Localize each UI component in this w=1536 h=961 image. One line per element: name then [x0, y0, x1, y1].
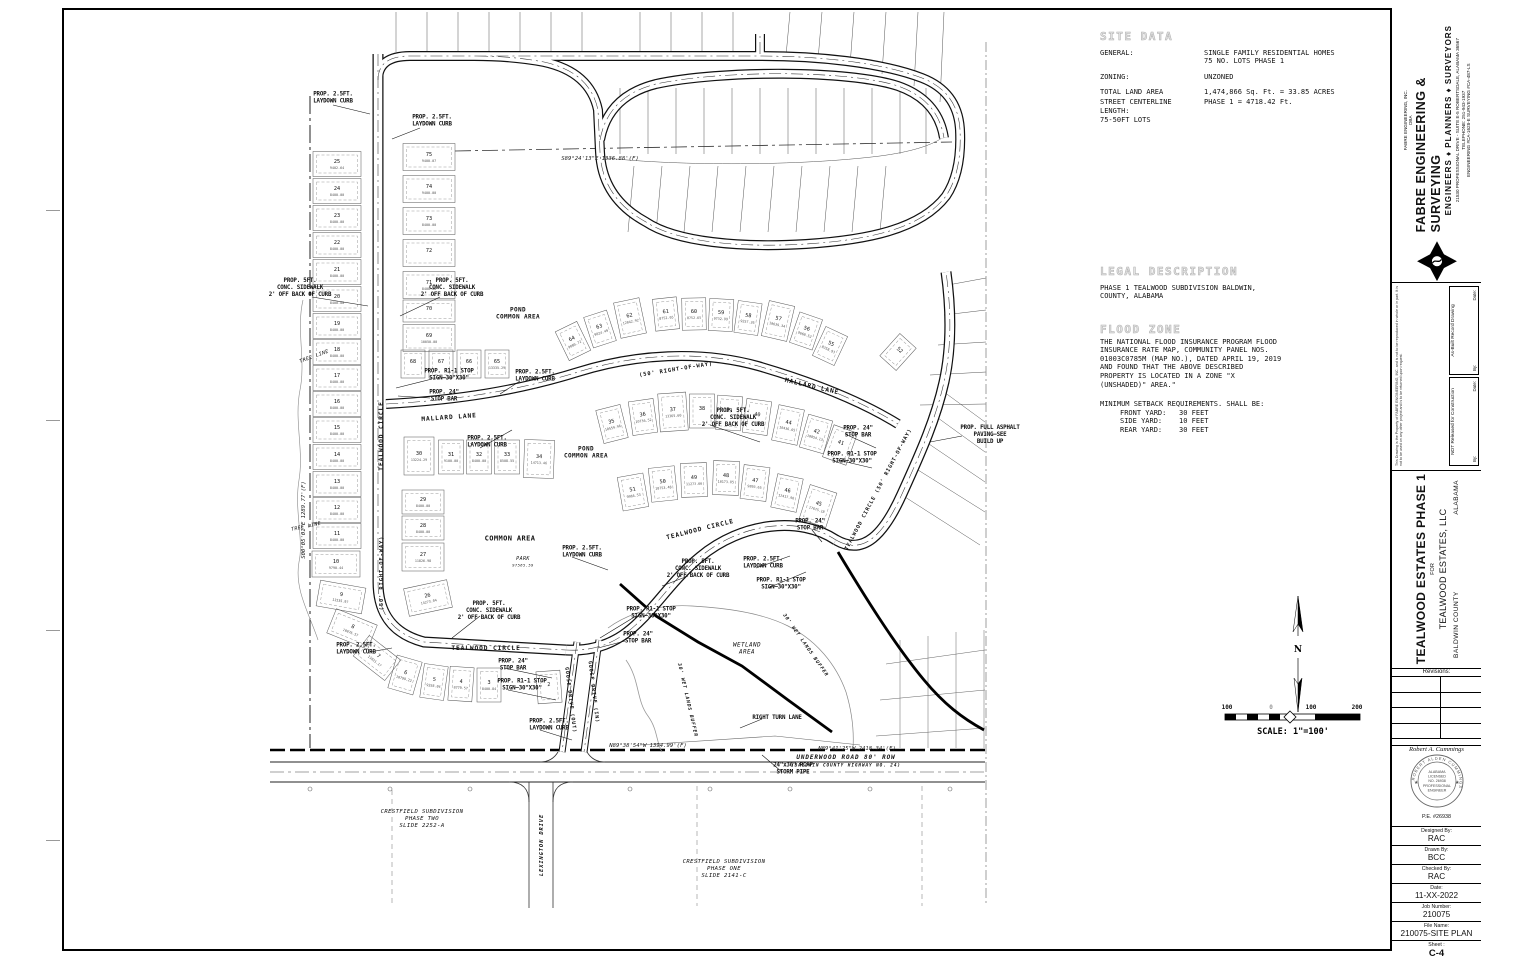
- svg-text:POND: POND: [578, 446, 594, 453]
- not-released-box: NOT Released for Construction By:Date:: [1449, 377, 1479, 466]
- svg-text:PROP. 2.5FT.: PROP. 2.5FT.: [515, 370, 554, 376]
- plan-callout: PROP. 2.5FT.LAYDOWN CURB: [336, 643, 376, 656]
- street-label: TEALWOOD CIRCLE: [451, 645, 520, 652]
- lot-number: 47: [752, 478, 759, 485]
- lot-number: 16: [334, 399, 340, 405]
- lot-number: 58: [745, 313, 752, 320]
- svg-text:RIGHT TURN LANE: RIGHT TURN LANE: [752, 715, 802, 721]
- lot: 128400.00: [313, 498, 361, 523]
- lot-area: 14713.46: [531, 461, 547, 466]
- lot: 911535.97: [316, 580, 366, 614]
- lot-area: 10050.00: [421, 340, 437, 344]
- svg-text:LAYDOWN CURB: LAYDOWN CURB: [336, 650, 376, 656]
- svg-text:POND: POND: [510, 307, 526, 314]
- plan-callout: RIGHT TURN LANE: [752, 715, 802, 721]
- lot-area: 9358.84: [426, 683, 441, 689]
- lot-area: 8400.00: [330, 512, 344, 516]
- lot-number: 32: [476, 452, 482, 458]
- lot: 738400.00: [403, 208, 455, 235]
- lot-number: 15: [334, 425, 340, 431]
- lot: 519966.53: [617, 473, 649, 511]
- lot-number: 26: [424, 592, 431, 599]
- north-label: N: [1294, 645, 1302, 655]
- revisions-cell: [1392, 708, 1441, 724]
- lot: 5710639.34: [761, 301, 794, 342]
- lot-number: 11: [334, 531, 340, 537]
- plan-callout: PROP. R1-1 STOPSIGN—30"X30": [497, 679, 547, 692]
- plan-callout: PROP. 24"STOP BAR: [843, 426, 873, 439]
- lot: 639024.49: [584, 310, 617, 348]
- fabre-logo-icon: [1415, 240, 1459, 282]
- lot-area: 8400.00: [330, 247, 344, 251]
- plan-callout: PROP. 24"STOP BAR: [429, 390, 459, 403]
- lot-number: 59: [718, 310, 725, 316]
- lot-area: 9100.00: [444, 459, 458, 463]
- lot: 238400.00: [313, 206, 361, 231]
- drawing-disclaimer: This Drawing is the Property of FABRE EN…: [1395, 286, 1404, 466]
- engineer-name: Robert A. Cummings: [1392, 745, 1481, 753]
- lot: 4911273.66: [680, 463, 707, 498]
- lot-area: 13224.29: [411, 458, 427, 462]
- site-data-row: ZONING:UNZONED: [1100, 73, 1400, 82]
- svg-text:2' OFF BACK OF CURB: 2' OFF BACK OF CURB: [421, 292, 484, 298]
- lot-number: 65: [494, 359, 500, 365]
- svg-text:CONC. SIDEWALK: CONC. SIDEWALK: [675, 566, 722, 572]
- svg-text:PAVING—SEE: PAVING—SEE: [974, 432, 1008, 438]
- lot-area: 8400.00: [330, 193, 344, 197]
- project-title: TEALWOOD ESTATES PHASE 1: [1414, 474, 1428, 665]
- lot-number: 19: [334, 321, 340, 327]
- bearing-label: S89°24'13"E 1336.88'(F): [561, 156, 638, 162]
- lot-area: 9790.44: [329, 566, 343, 570]
- plan-area-label: TREE LINE: [299, 349, 330, 365]
- lot-number: 48: [723, 473, 729, 479]
- svg-text:LAYDOWN CURB: LAYDOWN CURB: [313, 99, 353, 105]
- svg-text:STOP BAR: STOP BAR: [845, 433, 872, 439]
- svg-text:N89°38'54"W 1394.99'(F): N89°38'54"W 1394.99'(F): [608, 743, 686, 749]
- lot: 3510559.96: [596, 404, 628, 443]
- firm-name: FABRE ENGINEERING & SURVEYING: [1414, 8, 1443, 232]
- site-data-block: SITE DATA GENERAL:SINGLE FAMILY RESIDENT…: [1100, 33, 1400, 126]
- lot-number: 72: [426, 248, 432, 254]
- svg-text:PROP. 2.5FT.: PROP. 2.5FT.: [467, 436, 506, 442]
- svg-text:97565.59: 97565.59: [512, 562, 534, 567]
- plan-area-label: PONDCOMMON AREA: [564, 446, 608, 460]
- lot: 168400.00: [313, 392, 361, 417]
- lot-area: 17675.18: [808, 505, 825, 514]
- svg-text:CONC. SIDEWALK: CONC. SIDEWALK: [466, 608, 513, 614]
- lot: 608752.65: [682, 298, 707, 330]
- svg-text:CONC. SIDEWALK: CONC. SIDEWALK: [277, 285, 324, 291]
- date-field: Date:11-XX-2022: [1392, 883, 1481, 902]
- site-data-row: 75-50FT LOTS: [1100, 116, 1400, 125]
- lot-number: 8: [350, 624, 355, 631]
- lot: 228400.00: [313, 233, 361, 258]
- lot-area: 8400.00: [330, 274, 344, 278]
- lot: 4210854.13: [799, 414, 832, 454]
- lot: 6212042.92: [614, 298, 647, 339]
- project-state: ALABAMA: [1453, 480, 1460, 515]
- svg-text:30' WET LANDS BUFFER: 30' WET LANDS BUFFER: [676, 662, 699, 738]
- lot-number: 52: [895, 346, 904, 355]
- lot-area: 9668.52: [797, 331, 812, 339]
- svg-text:(BALDWIN COUNTY HIGHWAY NO. 24: (BALDWIN COUNTY HIGHWAY NO. 24): [791, 763, 901, 769]
- svg-text:(50' RIGHT-OF-WAY): (50' RIGHT-OF-WAY): [379, 536, 385, 611]
- lot: 118400.00: [313, 524, 361, 549]
- svg-text:ENGINEER: ENGINEER: [1427, 788, 1446, 792]
- revisions-cell: [1392, 724, 1441, 740]
- svg-text:PROP. R1-1 STOP: PROP. R1-1 STOP: [756, 578, 806, 584]
- lot-number: 24: [334, 186, 340, 192]
- plan-area-label: CRESTFIELD SUBDIVISIONPHASE TWOSLIDE 225…: [381, 809, 464, 829]
- lot-number: 69: [426, 333, 432, 339]
- svg-text:2' OFF BACK OF CURB: 2' OFF BACK OF CURB: [458, 615, 521, 621]
- svg-text:PARK: PARK: [516, 556, 530, 562]
- svg-text:STOP BAR: STOP BAR: [797, 526, 824, 532]
- lot-number: 49: [691, 475, 697, 481]
- file-name-field: File Name:210075-SITE PLAN: [1392, 921, 1481, 940]
- lot: 148400.00: [313, 445, 361, 470]
- plan-callout: PROP. 24"STOP BAR: [498, 659, 528, 672]
- lot: 479893.65: [740, 465, 770, 502]
- lot: 649080.72: [555, 321, 591, 360]
- svg-text:LAYDOWN CURB: LAYDOWN CURB: [412, 122, 452, 128]
- lot: 3013224.29: [404, 437, 434, 475]
- lot-number: 50: [659, 479, 666, 486]
- svg-text:PROP. 2.5FT.: PROP. 2.5FT.: [743, 557, 782, 563]
- lot-number: 44: [785, 419, 792, 426]
- release-block: This Drawing is the Property of FABRE EN…: [1393, 282, 1481, 470]
- svg-text:SIGN—30"X30": SIGN—30"X30": [832, 459, 871, 465]
- street-label: LEXINGTON DRIVE: [539, 814, 545, 876]
- lot-number: 27: [420, 552, 426, 558]
- firm-block: FABRE ENGINEERING, INC. DBA FABRE ENGINE…: [1393, 8, 1481, 282]
- svg-text:PROP. 2.5FT.: PROP. 2.5FT.: [529, 719, 568, 725]
- lot-number: 68: [410, 359, 416, 365]
- firm-tagline: ENGINEERS ♦ PLANNERS ♦ SURVEYORS: [1444, 25, 1453, 215]
- plan-area-label: COMMON AREA: [485, 534, 536, 542]
- scale-tick-label: 0: [1269, 704, 1273, 711]
- pe-seal-icon: ROBERT ALDEN CUMMINGS ★ ★ ALABAMALICENSE…: [1408, 753, 1466, 809]
- svg-text:STOP BAR: STOP BAR: [625, 639, 652, 645]
- lot-number: 31: [448, 452, 454, 458]
- lot: 38400.84: [477, 668, 501, 702]
- svg-text:UNDERWOOD ROAD 80' ROW: UNDERWOOD ROAD 80' ROW: [796, 754, 896, 761]
- lot-area: 8400.00: [330, 432, 344, 436]
- lot-area: 9893.65: [747, 484, 762, 490]
- legal-description-title: LEGAL DESCRIPTION: [1100, 268, 1400, 277]
- lot-number: 4: [459, 679, 463, 685]
- svg-text:PROP. 2.5FT.: PROP. 2.5FT.: [562, 546, 601, 552]
- svg-text:SLIDE 2252-A: SLIDE 2252-A: [399, 823, 444, 829]
- title-block: FABRE ENGINEERING, INC. DBA FABRE ENGINE…: [1390, 8, 1481, 951]
- revisions-cell: [1441, 693, 1481, 709]
- svg-text:COMMON AREA: COMMON AREA: [496, 314, 540, 321]
- lot: 589257.26: [734, 300, 762, 335]
- checked-by-field: Checked By:RAC: [1392, 864, 1481, 883]
- lot-area: 8400.00: [472, 459, 486, 463]
- scale-text: SCALE: 1"=100': [1257, 727, 1329, 737]
- drawn-by-field: Drawn By:BCC: [1392, 845, 1481, 864]
- lot-number: 13: [334, 479, 340, 485]
- lot-number: 6: [403, 670, 408, 677]
- revisions-cell: [1392, 693, 1441, 709]
- firm-dba: DBA: [1408, 115, 1413, 124]
- lots: 259402.64248400.00238400.00228400.002184…: [312, 144, 916, 704]
- lot-number: 41: [837, 439, 845, 447]
- svg-text:★: ★: [1414, 780, 1419, 786]
- lot: 288400.00: [402, 516, 444, 540]
- lot-number: 10: [333, 559, 339, 565]
- svg-text:CONC. SIDEWALK: CONC. SIDEWALK: [710, 415, 757, 421]
- job-number-field: Job Number:210075: [1392, 902, 1481, 921]
- svg-text:2' OFF BACK OF CURB: 2' OFF BACK OF CURB: [702, 422, 765, 428]
- lot-number: 23: [334, 213, 340, 219]
- svg-text:LAYDOWN CURB: LAYDOWN CURB: [529, 726, 569, 732]
- lot: 48779.57: [448, 666, 474, 702]
- revisions-cell: [1441, 708, 1481, 724]
- street-label: MALLARD LANE: [421, 412, 477, 423]
- street-label: TEALWOOD CIRCLE: [378, 401, 385, 470]
- lot: 59358.84: [420, 663, 448, 700]
- svg-text:WETLAND: WETLAND: [733, 642, 761, 649]
- lot-area: 8400.00: [330, 538, 344, 542]
- lot-number: 73: [426, 216, 432, 222]
- street-label: (50' RIGHT-OF-WAY): [639, 361, 714, 379]
- plan-callout: PROP. 24"STOP BAR: [795, 519, 825, 532]
- lot-area: 12042.92: [622, 318, 639, 325]
- revisions-label: Revisions:: [1392, 668, 1481, 676]
- plan-callout: PROP. R1-1 STOPSIGN—30"X30": [756, 578, 806, 591]
- lot-number: 70: [426, 306, 432, 312]
- lot-area: 8400.84: [482, 687, 496, 691]
- lot: 618752.65: [652, 297, 679, 331]
- lot-area: 8779.57: [453, 685, 468, 690]
- lot-area: 9402.64: [330, 166, 344, 170]
- drawing-info-fields: Designed By:RAC Drawn By:BCC Checked By:…: [1392, 826, 1481, 949]
- firm-licenses: ENGINEERING #CA-1628-E SURVEYING #CA-487…: [1466, 63, 1471, 177]
- plan-area-label: PARK: [516, 556, 530, 562]
- plan-callout: PROP. R1-1 STOPSIGN—30"X30": [626, 607, 676, 620]
- plan-callout: PROP. 2.5FT.LAYDOWN CURB: [743, 557, 783, 570]
- lot-area: 8400.00: [330, 220, 344, 224]
- plan-area-label: WETLANDAREA: [733, 642, 761, 656]
- lot-number: 51: [629, 487, 636, 494]
- setbacks-heading: MINIMUM SETBACK REQUIREMENTS. SHALL BE:: [1100, 400, 1400, 409]
- svg-text:AREA: AREA: [738, 649, 755, 656]
- lot-number: 46: [784, 487, 791, 494]
- svg-text:TEALWOOD CIRCLE: TEALWOOD CIRCLE: [378, 401, 385, 470]
- lot-area: 8400.00: [416, 530, 430, 534]
- svg-text:SIGN—30"X30": SIGN—30"X30": [631, 614, 670, 620]
- lot: 3414713.46: [523, 439, 554, 478]
- svg-text:PROP. R1-1 STOP: PROP. R1-1 STOP: [424, 369, 474, 375]
- plan-callout: PROP. 2.5FT.LAYDOWN CURB: [515, 370, 555, 383]
- lot-area: 8400.00: [330, 486, 344, 490]
- lot: 3610736.52: [628, 398, 657, 435]
- lot: 158400.00: [313, 418, 361, 443]
- as-built-box: As-Built Record Drawing By:Date:: [1449, 286, 1479, 375]
- lot-area: 8400.00: [330, 354, 344, 358]
- engineer-seal-block: Robert A. Cummings ROBERT ALDEN CUMMINGS…: [1392, 745, 1481, 820]
- svg-text:PROP. 24": PROP. 24": [843, 426, 873, 432]
- plan-callout: PROP. R1-1 STOPSIGN—30"X30": [827, 452, 877, 465]
- svg-text:CRESTFIELD SUBDIVISION: CRESTFIELD SUBDIVISION: [381, 809, 464, 815]
- street-label: (BALDWIN COUNTY HIGHWAY NO. 24): [791, 763, 901, 769]
- plan-callout: PROP. 2.5FT.LAYDOWN CURB: [529, 719, 569, 732]
- svg-text:SIGN—30"X30": SIGN—30"X30": [429, 376, 468, 382]
- svg-text:PROP. R1-1 STOP: PROP. R1-1 STOP: [497, 679, 547, 685]
- lot: 749400.00: [403, 176, 455, 203]
- sheet-field: Sheet :C-4: [1392, 940, 1481, 961]
- lot-area: 8400.00: [330, 459, 344, 463]
- lot-area: 14273.04: [420, 598, 437, 605]
- lot-number: 3: [487, 680, 490, 686]
- lot: 248400.00: [313, 179, 361, 204]
- project-title-block: TEALWOOD ESTATES PHASE 1 FOR TEALWOOD ES…: [1393, 470, 1481, 668]
- svg-text:PROP. 24": PROP. 24": [498, 659, 528, 665]
- svg-text:NO. 26938: NO. 26938: [1428, 779, 1445, 783]
- svg-text:PROP. R1-1 STOP: PROP. R1-1 STOP: [626, 607, 676, 613]
- lot-area: 10559.96: [605, 424, 622, 432]
- lot-number: 74: [426, 184, 432, 190]
- lot: 2711826.98: [402, 543, 444, 571]
- lot-area: 10736.52: [635, 418, 652, 424]
- lot-area: 8400.00: [416, 504, 430, 508]
- svg-text:2' OFF BACK OF CURB: 2' OFF BACK OF CURB: [667, 573, 730, 579]
- designed-by-field: Designed By:RAC: [1392, 826, 1481, 845]
- lot-number: 2: [547, 682, 551, 688]
- svg-text:SIGN—30"X30": SIGN—30"X30": [502, 686, 541, 692]
- site-data-row: GENERAL:SINGLE FAMILY RESIDENTIAL HOMES …: [1100, 49, 1400, 66]
- svg-text:PROP. 2.5FT.: PROP. 2.5FT.: [336, 643, 375, 649]
- svg-text:PROP. 5FT.: PROP. 5FT.: [473, 601, 506, 607]
- site-plan-sheet: { "titleblock": { "firm": { "company_sma…: [0, 0, 1536, 960]
- lot-number: 75: [426, 152, 432, 158]
- svg-text:LICENSED: LICENSED: [1428, 775, 1446, 779]
- svg-text:MALLARD LANE: MALLARD LANE: [421, 412, 477, 423]
- lot: 6513335.29: [485, 350, 509, 378]
- plan-area-label: CRESTFIELD SUBDIVISIONPHASE ONESLIDE 214…: [683, 859, 766, 879]
- svg-text:30' WET LANDS BUFFER: 30' WET LANDS BUFFER: [781, 612, 830, 678]
- scale-bar: 1000100200SCALE: 1"=100': [1222, 704, 1363, 737]
- svg-text:ALABAMA: ALABAMA: [1428, 770, 1446, 774]
- svg-text:PHASE ONE: PHASE ONE: [707, 866, 741, 872]
- lot-number: 12: [334, 505, 340, 511]
- svg-text:PROP. 24": PROP. 24": [623, 632, 653, 638]
- plan-callout: PROP. 2.5FT.LAYDOWN CURB: [467, 436, 507, 449]
- flood-zone-body: THE NATIONAL FLOOD INSURANCE PROGRAM FLO…: [1100, 338, 1400, 390]
- lot-number: 5: [432, 677, 436, 683]
- svg-text:N89°41'25"W 2418.34'(F): N89°41'25"W 2418.34'(F): [817, 746, 895, 752]
- site-data-row: STREET CENTERLINE LENGTH:PHASE 1 = 4718.…: [1100, 98, 1400, 115]
- svg-text:LAYDOWN CURB: LAYDOWN CURB: [515, 377, 555, 383]
- pe-number: P.E. #26938: [1392, 814, 1481, 820]
- svg-text:STOP BAR: STOP BAR: [431, 397, 458, 403]
- svg-text:★: ★: [1455, 780, 1460, 786]
- lot-number: 20: [334, 294, 340, 300]
- setbacks-rows: FRONT YARD: 30 FEET SIDE YARD: 10 FEET R…: [1100, 409, 1400, 435]
- revisions-table: [1392, 676, 1481, 739]
- lot-area: 8400.00: [422, 223, 436, 227]
- svg-text:PROP. 5FT.: PROP. 5FT.: [682, 559, 715, 565]
- lot: 218400.00: [313, 260, 361, 285]
- svg-text:COMMON AREA: COMMON AREA: [564, 453, 608, 460]
- lot-area: 10436.65: [779, 425, 796, 432]
- lot-area: 12417.96: [778, 493, 795, 500]
- lot-number: 29: [420, 497, 426, 503]
- lot: 319100.00: [439, 440, 464, 474]
- lot: 4810173.85: [712, 461, 739, 496]
- plan-callout: PROP. 5FT.CONC. SIDEWALK2' OFF BACK OF C…: [667, 559, 730, 579]
- lot-area: 8400.00: [330, 380, 344, 384]
- lot-number: 18: [334, 347, 340, 353]
- svg-text:TEALWOOD CIRCLE: TEALWOOD CIRCLE: [451, 645, 520, 652]
- plan-callout: PROP. 2.5FT.LAYDOWN CURB: [562, 546, 602, 559]
- lot-area: 9966.53: [626, 493, 641, 499]
- lot-number: 25: [334, 159, 340, 165]
- lot-area: 9732.99: [714, 317, 728, 322]
- svg-text:PROP. 5FT.: PROP. 5FT.: [717, 408, 750, 414]
- lot: 259402.64: [313, 152, 361, 177]
- svg-text:PROP. FULL ASPHALT: PROP. FULL ASPHALT: [960, 425, 1020, 431]
- bearing-label: N89°38'54"W 1394.99'(F): [608, 743, 686, 749]
- bearing-label: N89°41'25"W 2418.34'(F): [817, 746, 895, 752]
- street-label: UNDERWOOD ROAD 80' ROW: [796, 754, 896, 761]
- svg-text:PROP. 24": PROP. 24": [795, 519, 825, 525]
- lot: 4410436.65: [772, 405, 805, 446]
- svg-text:PROP. 2.5FT.: PROP. 2.5FT.: [313, 92, 352, 98]
- lot-number: 34: [536, 454, 542, 460]
- lot-area: 8400.00: [330, 406, 344, 410]
- lot-area: 10639.34: [769, 321, 786, 329]
- svg-text:CRESTFIELD SUBDIVISION: CRESTFIELD SUBDIVISION: [683, 859, 766, 865]
- lot-number: 62: [626, 312, 633, 319]
- revisions-cell: [1441, 677, 1481, 693]
- lot: 138400.00: [313, 472, 361, 497]
- svg-text:S00°05'01"E 1289.77'(F): S00°05'01"E 1289.77'(F): [301, 481, 307, 558]
- lot: 3713365.60: [658, 392, 689, 432]
- svg-text:PHASE TWO: PHASE TWO: [405, 816, 439, 822]
- scale-tick-label: 200: [1352, 704, 1363, 711]
- lot-area: 13365.60: [665, 413, 682, 418]
- lot-area: 9257.26: [740, 319, 755, 325]
- svg-text:(50' RIGHT-OF-WAY): (50' RIGHT-OF-WAY): [639, 361, 714, 379]
- lot-number: 14: [334, 452, 340, 458]
- revisions-cell: [1441, 724, 1481, 740]
- lot-area: 11273.66: [686, 482, 702, 487]
- lot-area: 10799.22: [395, 675, 412, 683]
- lot-area: 10854.13: [806, 434, 823, 442]
- bearing-label: S00°05'01"E 1289.77'(F): [301, 481, 307, 558]
- plan-callout: PROP. 24"STOP BAR: [623, 632, 653, 645]
- lot-area: 8752.65: [687, 316, 701, 320]
- plan-callout: PROP. 2.5FT.LAYDOWN CURB: [313, 92, 353, 105]
- project-for: FOR: [1430, 563, 1436, 575]
- lot: 2614273.04: [404, 580, 453, 617]
- lot: 558358.93: [812, 326, 847, 365]
- svg-text:S89°24'13"E 1336.88'(F): S89°24'13"E 1336.88'(F): [561, 156, 638, 162]
- setbacks-block: MINIMUM SETBACK REQUIREMENTS. SHALL BE: …: [1100, 400, 1400, 434]
- lot-area: 9400.00: [422, 191, 436, 195]
- lot: 6910050.00: [403, 325, 455, 352]
- lot-number: 33: [504, 452, 510, 458]
- street-label: 30' WET LANDS BUFFER: [676, 662, 699, 738]
- lot: 759400.07: [403, 144, 455, 171]
- plan-callout: PROP. 5FT.CONC. SIDEWALK2' OFF BACK OF C…: [458, 601, 521, 621]
- lot: 298400.00: [402, 490, 444, 514]
- lot: 4612417.96: [771, 474, 804, 513]
